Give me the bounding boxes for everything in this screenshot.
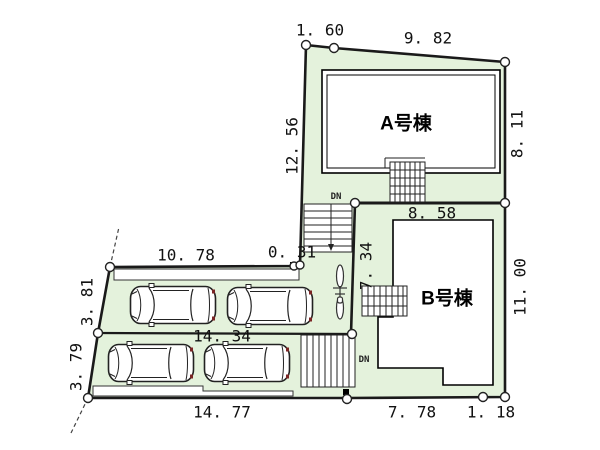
dimension-south-west: 14. 77 [193, 403, 251, 422]
survey-point-circle [501, 199, 510, 208]
survey-point-circle [84, 394, 93, 403]
apron-upper [114, 269, 299, 280]
dimension-south-corner: 1. 18 [467, 403, 515, 422]
dimension-west-upper: 3. 81 [78, 278, 97, 326]
dn-annotation-upper: DN [331, 192, 342, 202]
survey-point-circle [501, 393, 510, 402]
survey-point-circle [330, 44, 339, 53]
survey-point-circle [343, 395, 352, 404]
dashed-boundary-extension-lower [71, 398, 88, 433]
survey-point-circle [479, 393, 488, 402]
dashed-boundary-extension-upper [110, 227, 119, 267]
car-icon [131, 284, 216, 327]
survey-point-circle [302, 41, 311, 50]
stairs-building-a-icon [385, 158, 425, 202]
dn-annotation-lower: DN [359, 355, 370, 365]
car-icon [109, 342, 194, 385]
dimension-a-top-offset: 1. 60 [296, 21, 344, 40]
survey-point-circle [106, 263, 115, 272]
survey-point-circle [94, 329, 103, 338]
car-icon [228, 285, 313, 328]
dimension-a-top: 9. 82 [404, 29, 452, 48]
site-plan: 1. 60 9. 82 12. 56 8. 11 8. 58 7. 34 11.… [0, 0, 600, 450]
dimension-a-right: 8. 11 [508, 110, 527, 158]
building-a-label: A号棟 [380, 109, 432, 136]
building-b-label: B号棟 [421, 284, 473, 311]
survey-point-circle [296, 261, 304, 269]
site-plan-drawing [0, 0, 600, 450]
dimension-parking-mid: 14. 34 [193, 327, 251, 346]
dimension-a-left: 12. 56 [283, 117, 302, 175]
survey-point-circle [348, 330, 357, 339]
car-icon [205, 342, 290, 385]
survey-point-circle [351, 199, 360, 208]
dimension-south-b: 7. 78 [388, 403, 436, 422]
dimension-parking-gap: 0. 31 [268, 243, 316, 262]
dimension-west-lower: 3. 79 [67, 343, 86, 391]
dimension-b-left: 7. 34 [357, 242, 376, 290]
survey-point-circle [501, 58, 510, 67]
stairs-middle-strip-icon [301, 335, 355, 387]
dimension-ab-boundary: 8. 58 [408, 204, 456, 223]
dimension-parking-top: 10. 78 [157, 246, 215, 265]
dimension-b-right: 11. 00 [511, 258, 530, 316]
stairs-building-b-icon [362, 286, 407, 316]
